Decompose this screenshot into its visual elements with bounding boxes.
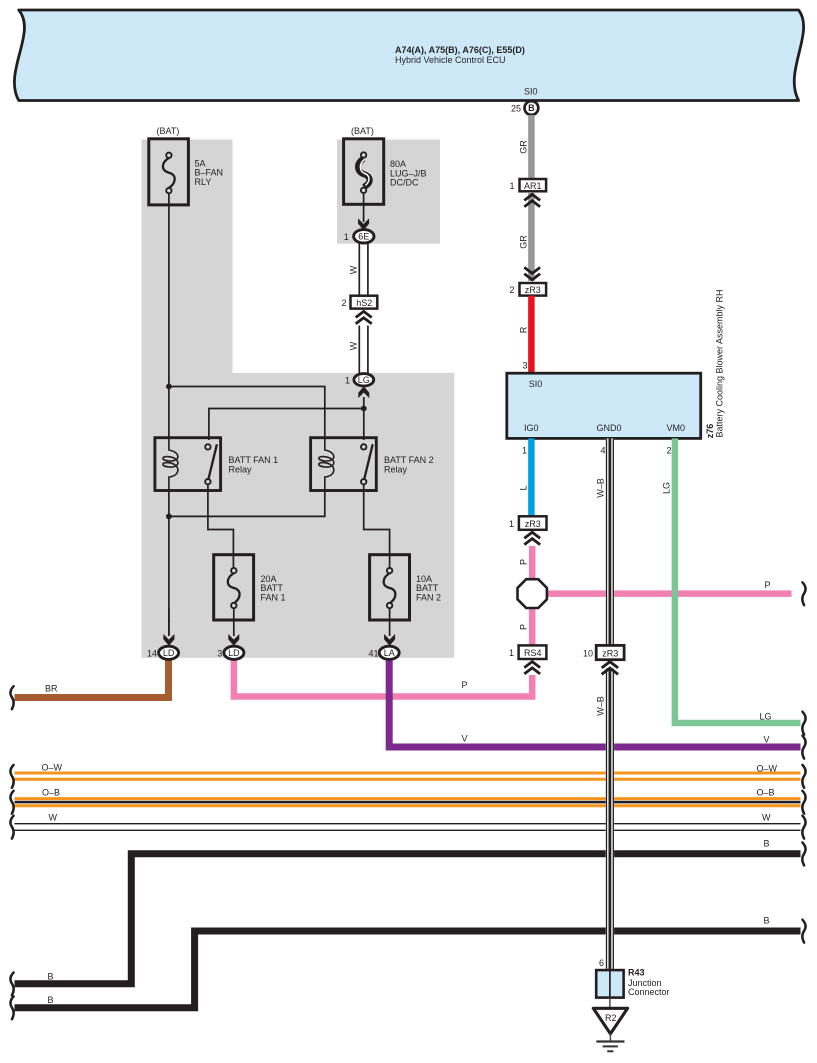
- svg-text:GR: GR: [519, 140, 529, 154]
- svg-text:Hybrid Vehicle Control ECU: Hybrid Vehicle Control ECU: [395, 55, 506, 65]
- svg-text:25: 25: [511, 104, 521, 114]
- svg-text:B: B: [48, 995, 54, 1005]
- svg-text:B: B: [528, 103, 535, 113]
- svg-text:FAN 1: FAN 1: [261, 592, 286, 602]
- svg-text:3: 3: [217, 648, 222, 658]
- svg-text:1: 1: [509, 519, 514, 529]
- svg-text:2: 2: [341, 298, 346, 308]
- svg-text:IG0: IG0: [524, 423, 539, 433]
- svg-text:(BAT): (BAT): [157, 126, 180, 136]
- svg-text:LA: LA: [384, 648, 395, 658]
- svg-text:B: B: [764, 839, 770, 849]
- svg-text:GND0: GND0: [597, 423, 622, 433]
- svg-text:BATT FAN 1: BATT FAN 1: [229, 455, 279, 465]
- svg-text:Relay: Relay: [229, 465, 253, 475]
- svg-text:3: 3: [522, 361, 527, 371]
- svg-text:zR3: zR3: [525, 519, 541, 529]
- svg-text:W: W: [762, 813, 771, 823]
- svg-text:DC/DC: DC/DC: [390, 178, 419, 188]
- svg-text:zR3: zR3: [602, 648, 618, 658]
- svg-text:O–B: O–B: [42, 788, 60, 798]
- svg-text:10: 10: [583, 648, 593, 658]
- svg-text:O–W: O–W: [42, 763, 63, 773]
- svg-text:LD: LD: [228, 648, 240, 658]
- svg-text:R43: R43: [628, 968, 645, 978]
- svg-text:V: V: [764, 735, 770, 745]
- svg-text:2: 2: [509, 285, 514, 295]
- svg-text:W: W: [49, 813, 58, 823]
- svg-text:1: 1: [345, 375, 350, 385]
- svg-text:14: 14: [147, 648, 157, 658]
- svg-text:W: W: [349, 341, 359, 350]
- svg-text:Connector: Connector: [628, 987, 670, 997]
- svg-text:W–B: W–B: [596, 696, 606, 716]
- svg-text:LG: LG: [760, 711, 772, 721]
- svg-text:1: 1: [344, 232, 349, 242]
- svg-text:hS2: hS2: [356, 298, 372, 308]
- svg-text:P: P: [462, 680, 468, 690]
- svg-text:LG: LG: [662, 482, 672, 494]
- svg-text:A74(A), A75(B), A76(C), E55(D): A74(A), A75(B), A76(C), E55(D): [395, 45, 525, 55]
- svg-text:O–W: O–W: [757, 764, 778, 774]
- svg-text:V: V: [462, 734, 468, 744]
- svg-text:zR3: zR3: [525, 285, 541, 295]
- svg-text:RS4: RS4: [524, 648, 542, 658]
- svg-text:LD: LD: [163, 648, 175, 658]
- svg-text:BATT FAN 2: BATT FAN 2: [384, 455, 434, 465]
- svg-text:SI0: SI0: [529, 379, 543, 389]
- svg-text:P: P: [519, 559, 529, 565]
- svg-text:4: 4: [600, 446, 605, 456]
- svg-text:z76: z76: [705, 424, 715, 439]
- svg-text:RLY: RLY: [195, 177, 212, 187]
- svg-text:AR1: AR1: [524, 181, 542, 191]
- svg-text:O–B: O–B: [757, 788, 775, 798]
- svg-text:2: 2: [666, 446, 671, 456]
- svg-text:P: P: [519, 624, 529, 630]
- svg-text:GR: GR: [519, 235, 529, 249]
- svg-text:BR: BR: [45, 684, 58, 694]
- svg-text:SI0: SI0: [524, 87, 538, 97]
- svg-text:41: 41: [368, 648, 378, 658]
- svg-text:Relay: Relay: [384, 465, 408, 475]
- svg-text:L: L: [519, 485, 529, 490]
- svg-text:6: 6: [599, 958, 604, 968]
- svg-text:FAN 2: FAN 2: [416, 592, 441, 602]
- svg-text:R: R: [519, 326, 529, 333]
- svg-text:1: 1: [509, 648, 514, 658]
- svg-text:W–B: W–B: [596, 478, 606, 498]
- svg-text:B: B: [764, 916, 770, 926]
- svg-text:6E: 6E: [358, 232, 369, 242]
- svg-text:(BAT): (BAT): [351, 126, 374, 136]
- svg-text:1: 1: [522, 446, 527, 456]
- svg-text:B: B: [48, 972, 54, 982]
- svg-text:P: P: [765, 580, 771, 590]
- svg-text:LG: LG: [358, 375, 370, 385]
- svg-text:VM0: VM0: [667, 423, 686, 433]
- svg-text:1: 1: [509, 181, 514, 191]
- svg-text:Battery Cooling Blower Assembl: Battery Cooling Blower Assembly RH: [715, 289, 725, 437]
- svg-text:R2: R2: [605, 1013, 617, 1023]
- svg-text:W: W: [349, 265, 359, 274]
